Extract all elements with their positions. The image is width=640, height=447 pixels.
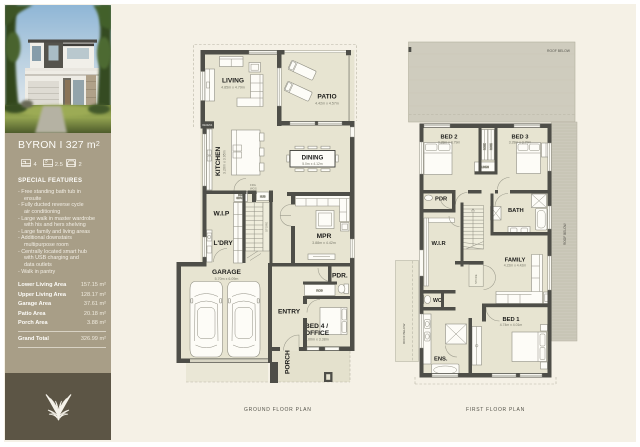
svg-text:PDR.: PDR. — [332, 273, 348, 280]
svg-text:BATH: BATH — [508, 208, 524, 214]
svg-text:HUB: HUB — [260, 195, 266, 199]
svg-text:ENTRY: ENTRY — [278, 309, 301, 316]
svg-text:PORCH: PORCH — [285, 350, 292, 374]
svg-text:W.I.P: W.I.P — [214, 211, 230, 218]
svg-text:STORE: STORE — [474, 274, 478, 284]
svg-text:ROOF BELOW: ROOF BELOW — [402, 323, 406, 344]
svg-text:DINING: DINING — [302, 155, 324, 162]
svg-text:4.22m x 4.42m: 4.22m x 4.42m — [504, 264, 527, 268]
svg-text:LIVING: LIVING — [222, 78, 244, 85]
svg-text:ROOF BELOW: ROOF BELOW — [563, 223, 567, 245]
svg-text:BED 4 /: BED 4 / — [305, 323, 328, 330]
svg-text:4.85m x 4.79m: 4.85m x 4.79m — [221, 86, 245, 90]
svg-text:GARAGE: GARAGE — [212, 269, 242, 276]
svg-text:LINEN: LINEN — [481, 165, 489, 169]
svg-text:WC: WC — [433, 298, 442, 304]
svg-text:RECESS: RECESS — [202, 124, 212, 127]
svg-text:4.42m x 4.57m: 4.42m x 4.57m — [315, 102, 339, 106]
svg-text:W.I.R: W.I.R — [432, 241, 447, 247]
svg-text:FAMILY: FAMILY — [505, 258, 526, 264]
svg-text:PDR: PDR — [435, 197, 448, 203]
svg-text:3.28m x 3.79m: 3.28m x 3.79m — [438, 140, 461, 144]
svg-text:L'DRY: L'DRY — [214, 240, 234, 247]
svg-text:3.88m x 4.42m: 3.88m x 4.42m — [312, 241, 336, 245]
svg-text:OFFICE: OFFICE — [305, 330, 330, 337]
svg-text:ROBE: ROBE — [484, 143, 487, 150]
svg-text:ROBE: ROBE — [490, 143, 493, 150]
svg-text:PATIO: PATIO — [317, 94, 336, 101]
svg-text:5.70m x 6.09m: 5.70m x 6.09m — [215, 277, 239, 281]
svg-text:3.28m x 3.79m: 3.28m x 3.79m — [509, 140, 532, 144]
svg-text:KITCHEN: KITCHEN — [215, 146, 222, 176]
svg-text:STORE: STORE — [265, 222, 269, 232]
svg-text:ROB: ROB — [316, 289, 323, 293]
svg-text:ROOF BELOW: ROOF BELOW — [547, 49, 571, 53]
svg-text:5.0m x 4.12m: 5.0m x 4.12m — [302, 162, 323, 166]
svg-text:BED 1: BED 1 — [502, 317, 520, 323]
svg-text:MPR: MPR — [317, 233, 332, 240]
svg-text:WOS: WOS — [250, 186, 257, 190]
svg-text:4.74m x 4.01m: 4.74m x 4.01m — [500, 323, 523, 327]
svg-text:3.20m x 3.95m: 3.20m x 3.95m — [223, 150, 227, 174]
svg-text:ENS.: ENS. — [434, 357, 448, 363]
svg-text:3.00m x 3.38m: 3.00m x 3.38m — [305, 338, 329, 342]
